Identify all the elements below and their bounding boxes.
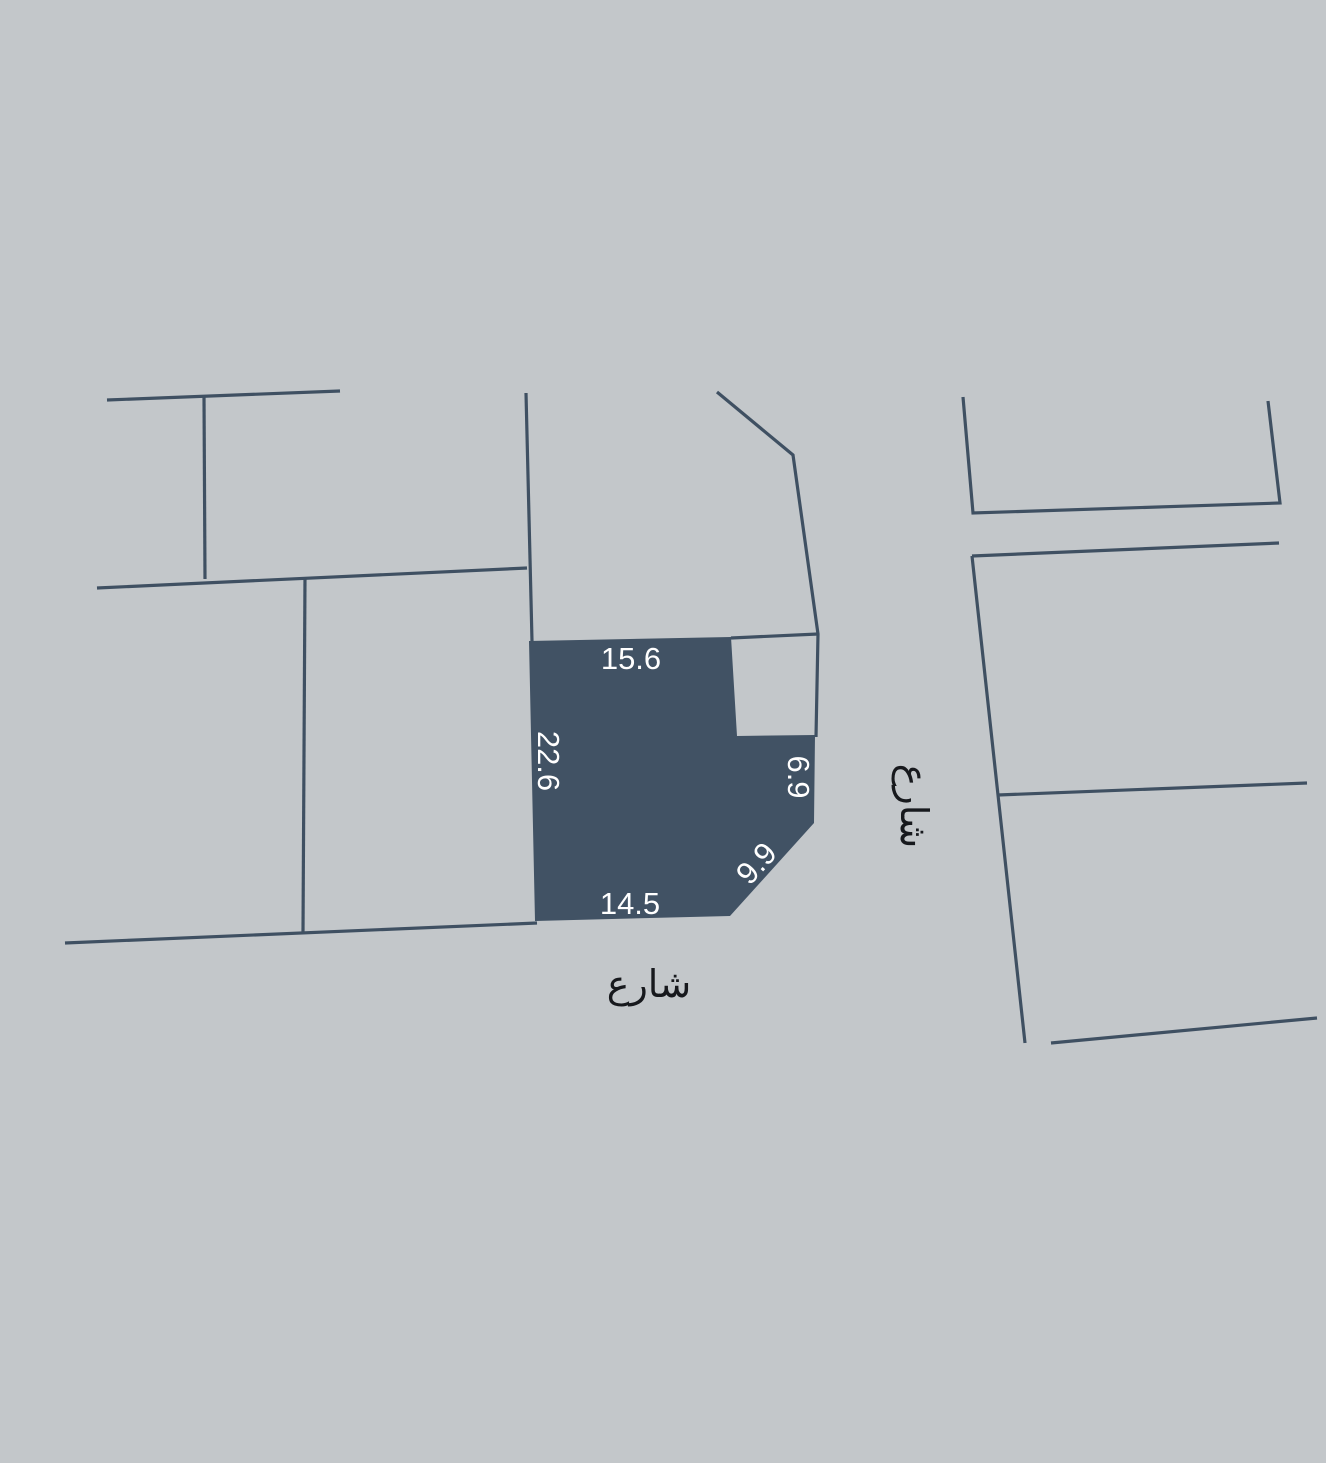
- dimension-left: 22.6: [531, 731, 566, 791]
- street-label-south: شارع: [607, 962, 691, 1006]
- boundary-line-mid-vertical: [303, 577, 305, 932]
- street-label-east: شارع: [892, 764, 936, 848]
- dimension-bottom: 14.5: [600, 886, 660, 921]
- boundary-line-topleft-vertical: [204, 396, 205, 579]
- dimension-top: 15.6: [601, 641, 661, 676]
- cadastral-map: 15.6 22.6 6.9 9.9 14.5 شارع شارع: [0, 0, 1326, 1463]
- dimension-right: 6.9: [781, 755, 816, 798]
